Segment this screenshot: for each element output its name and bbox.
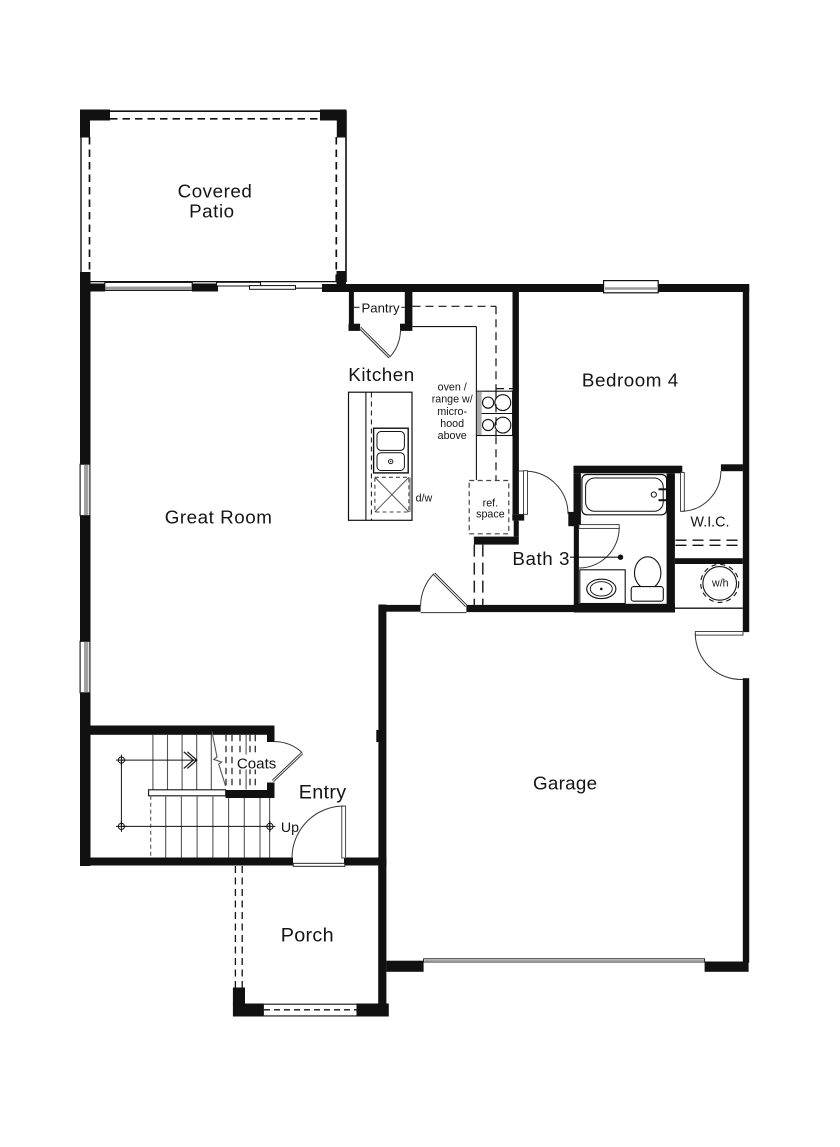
svg-text:Entry: Entry xyxy=(299,782,347,804)
svg-text:range w/: range w/ xyxy=(432,394,473,406)
svg-text:Bedroom 4: Bedroom 4 xyxy=(582,369,679,390)
svg-text:above: above xyxy=(438,430,467,442)
svg-text:Up: Up xyxy=(281,820,299,836)
svg-text:Covered: Covered xyxy=(178,180,253,201)
svg-text:Kitchen: Kitchen xyxy=(348,364,415,385)
svg-text:Bath 3: Bath 3 xyxy=(512,548,570,569)
svg-text:w/h: w/h xyxy=(711,578,729,590)
svg-text:Pantry: Pantry xyxy=(361,301,400,316)
svg-text:micro-: micro- xyxy=(437,406,467,418)
svg-text:space: space xyxy=(476,508,505,520)
svg-text:W.I.C.: W.I.C. xyxy=(691,514,730,530)
svg-text:Garage: Garage xyxy=(533,773,597,794)
svg-text:Great Room: Great Room xyxy=(165,507,273,528)
svg-text:d/w: d/w xyxy=(416,492,433,504)
svg-text:Patio: Patio xyxy=(189,200,235,221)
svg-text:Porch: Porch xyxy=(281,924,334,946)
svg-text:hood: hood xyxy=(440,418,464,430)
svg-text:oven /: oven / xyxy=(438,382,467,394)
svg-text:Coats: Coats xyxy=(237,755,276,772)
